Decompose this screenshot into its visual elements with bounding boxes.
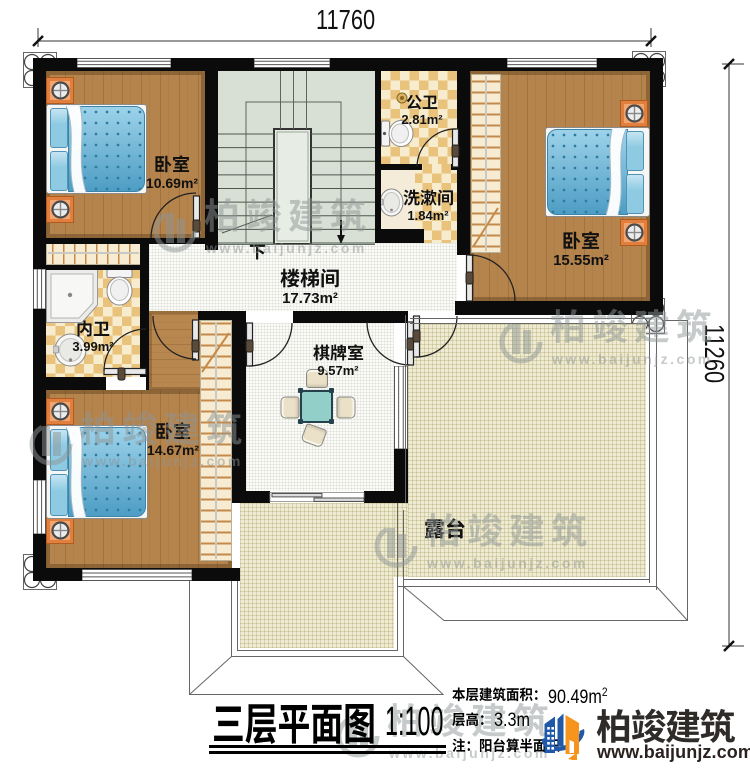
svg-text:www.baijunjz.com: www.baijunjz.com <box>551 351 713 367</box>
svg-text:www.baijunjz.com: www.baijunjz.com <box>426 555 588 571</box>
svg-text:www.baijunjz.com: www.baijunjz.com <box>81 453 243 469</box>
svg-text:www.baijunjz.com: www.baijunjz.com <box>205 240 367 256</box>
